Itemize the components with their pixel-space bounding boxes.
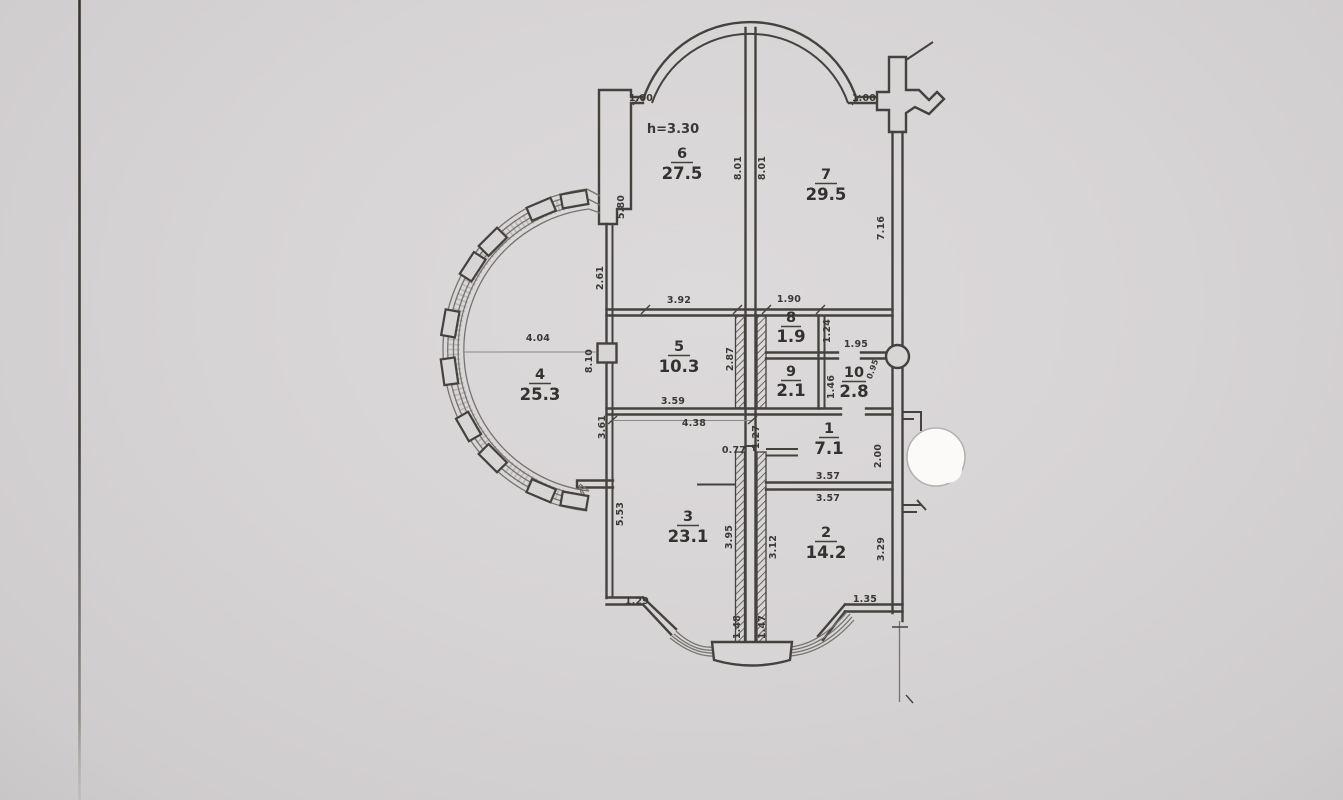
dim-label: 3.61 xyxy=(597,415,608,439)
dim-label: 2.61 xyxy=(595,266,606,290)
dim-label: 5.53 xyxy=(615,502,626,526)
room-area: 2.8 xyxy=(839,382,868,401)
dim-label: 1.95 xyxy=(844,339,868,350)
dim-label: 3.92 xyxy=(667,295,691,306)
dim-label: 0.95 xyxy=(865,358,881,381)
vent-shaft xyxy=(736,316,745,408)
round-bay-wall xyxy=(441,189,600,511)
dim-label: 3.59 xyxy=(661,396,685,407)
vent-shaft xyxy=(757,316,766,408)
dim-label: 3.95 xyxy=(724,525,735,549)
dim-label: 3.12 xyxy=(768,535,779,559)
room-area: 2.1 xyxy=(776,381,805,400)
dim-label: 4.38 xyxy=(682,418,706,429)
room-number: 10 xyxy=(844,365,864,381)
dim-label: 1.27 xyxy=(751,425,762,449)
ceiling-height-note: h=3.30 xyxy=(647,122,699,137)
dim-label: 1.48 xyxy=(732,615,743,639)
room-number: 7 xyxy=(821,167,831,183)
dim-label: 2.00 xyxy=(873,444,884,468)
room-number: 6 xyxy=(677,146,687,162)
dimension-ticks xyxy=(608,95,860,424)
room-number: 3 xyxy=(683,509,693,525)
column-square xyxy=(598,344,617,363)
dim-label: 8.01 xyxy=(733,156,744,180)
vent-shaft xyxy=(757,452,766,643)
balcony-slab xyxy=(712,642,792,666)
room-area: 29.5 xyxy=(806,185,847,204)
room-label-6: 6 27.5 xyxy=(662,146,703,183)
dim-label: 1.24 xyxy=(822,319,833,343)
dim-label: 8.01 xyxy=(757,156,768,180)
room-label-1: 1 7.1 xyxy=(814,421,843,458)
dim-label: 1.00 xyxy=(852,93,876,104)
dim-label: 1.90 xyxy=(777,294,801,305)
dim-label: 3.57 xyxy=(816,493,840,504)
bay-window-mullions xyxy=(441,190,589,510)
room-number: 2 xyxy=(821,525,831,541)
dim-label: 5.80 xyxy=(616,195,627,219)
room-label-7: 7 29.5 xyxy=(806,167,847,204)
dim-label: 4.04 xyxy=(526,333,550,344)
room-area: 25.3 xyxy=(520,385,561,404)
room-label-10: 10 2.8 xyxy=(839,365,868,401)
whiteout-mark xyxy=(907,428,965,486)
dim-label: 3.57 xyxy=(816,471,840,482)
room-area: 7.1 xyxy=(814,439,843,458)
room-number: 1 xyxy=(824,421,834,437)
room-area: 27.5 xyxy=(662,164,703,183)
floor-plan: h=3.30 6 27.5 7 29.5 5 10.3 8 1.9 9 2.1 … xyxy=(0,0,1343,800)
room-label-2: 2 14.2 xyxy=(806,525,847,562)
room-label-3: 3 23.1 xyxy=(668,509,709,546)
room-area: 23.1 xyxy=(668,527,709,546)
room-area: 1.9 xyxy=(776,327,805,346)
vent-shaft xyxy=(736,452,745,643)
dim-label: 1.35 xyxy=(853,594,877,605)
dim-label: 8.10 xyxy=(584,349,595,373)
room-area: 14.2 xyxy=(806,543,847,562)
room-number: 8 xyxy=(786,310,796,326)
dim-label: 1.46 xyxy=(826,375,837,399)
dim-label: 7.16 xyxy=(876,216,887,240)
room-label-5: 5 10.3 xyxy=(659,339,700,376)
dim-label: 1.29 xyxy=(625,596,649,607)
room-number: 4 xyxy=(535,367,545,383)
room-label-4: 4 25.3 xyxy=(520,367,561,404)
room-number: 5 xyxy=(674,339,684,355)
dim-label: 2.87 xyxy=(725,347,736,371)
room-area: 10.3 xyxy=(659,357,700,376)
dim-label: 3.29 xyxy=(876,537,887,561)
dim-label: 1.47 xyxy=(757,615,768,639)
scanned-page: h=3.30 6 27.5 7 29.5 5 10.3 8 1.9 9 2.1 … xyxy=(0,0,1343,800)
room-number: 9 xyxy=(786,364,796,380)
room-label-9: 9 2.1 xyxy=(776,364,805,400)
dim-label: 1.00 xyxy=(629,93,653,104)
column-circle xyxy=(886,345,909,368)
dim-label: 0.77 xyxy=(722,445,746,456)
